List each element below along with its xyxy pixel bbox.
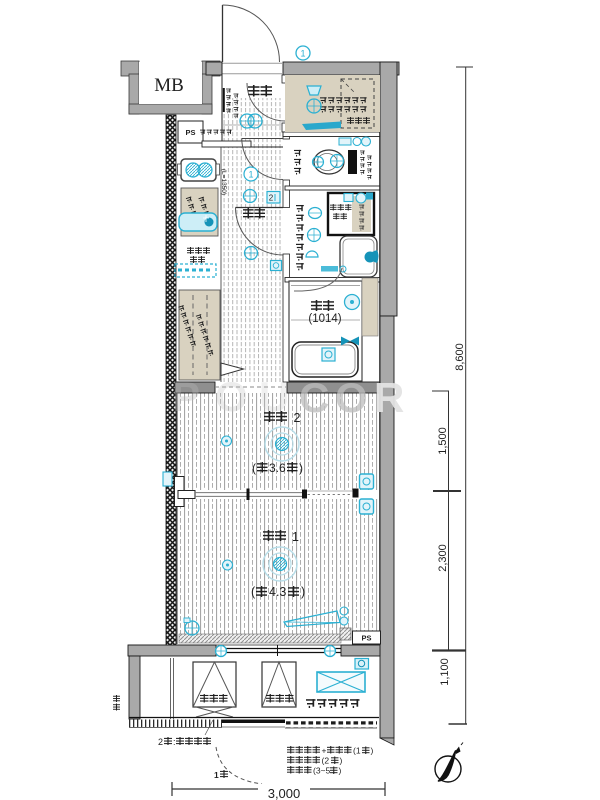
svg-text:): ) bbox=[340, 756, 343, 766]
svg-text:8,600: 8,600 bbox=[454, 343, 466, 371]
svg-text:O: O bbox=[335, 374, 368, 421]
svg-text:4.3: 4.3 bbox=[269, 585, 286, 599]
svg-text:O: O bbox=[215, 373, 248, 420]
svg-text:1: 1 bbox=[214, 770, 219, 780]
svg-text:PS: PS bbox=[185, 128, 195, 137]
svg-text:(L=1350): (L=1350) bbox=[220, 169, 227, 195]
svg-text::: : bbox=[173, 737, 176, 747]
svg-text:R: R bbox=[374, 374, 404, 421]
svg-text:3.6: 3.6 bbox=[269, 461, 286, 475]
svg-text:P: P bbox=[172, 373, 200, 420]
svg-text:C: C bbox=[299, 374, 329, 421]
svg-text:U: U bbox=[259, 373, 289, 420]
svg-text:): ) bbox=[301, 585, 305, 599]
svg-text:(1: (1 bbox=[353, 746, 361, 756]
svg-text:2,300: 2,300 bbox=[437, 544, 449, 572]
svg-text:(: ( bbox=[252, 461, 256, 475]
svg-text:): ) bbox=[371, 746, 374, 756]
svg-text:(1014): (1014) bbox=[308, 313, 341, 325]
svg-text:): ) bbox=[339, 766, 342, 776]
svg-text:+: + bbox=[322, 746, 327, 756]
svg-text:1: 1 bbox=[300, 49, 305, 59]
svg-text:3,000: 3,000 bbox=[268, 786, 301, 800]
svg-text:(2: (2 bbox=[322, 756, 330, 766]
svg-text:MB: MB bbox=[154, 75, 184, 96]
svg-text:1,500: 1,500 bbox=[437, 427, 449, 455]
svg-text:1,100: 1,100 bbox=[439, 658, 451, 686]
svg-text:2: 2 bbox=[269, 194, 274, 203]
svg-text:1: 1 bbox=[248, 170, 253, 180]
svg-text:): ) bbox=[299, 461, 303, 475]
svg-text:2: 2 bbox=[158, 737, 163, 747]
svg-text:1: 1 bbox=[292, 530, 299, 544]
svg-text:(3~5: (3~5 bbox=[313, 766, 331, 776]
svg-text:PS: PS bbox=[361, 634, 371, 643]
